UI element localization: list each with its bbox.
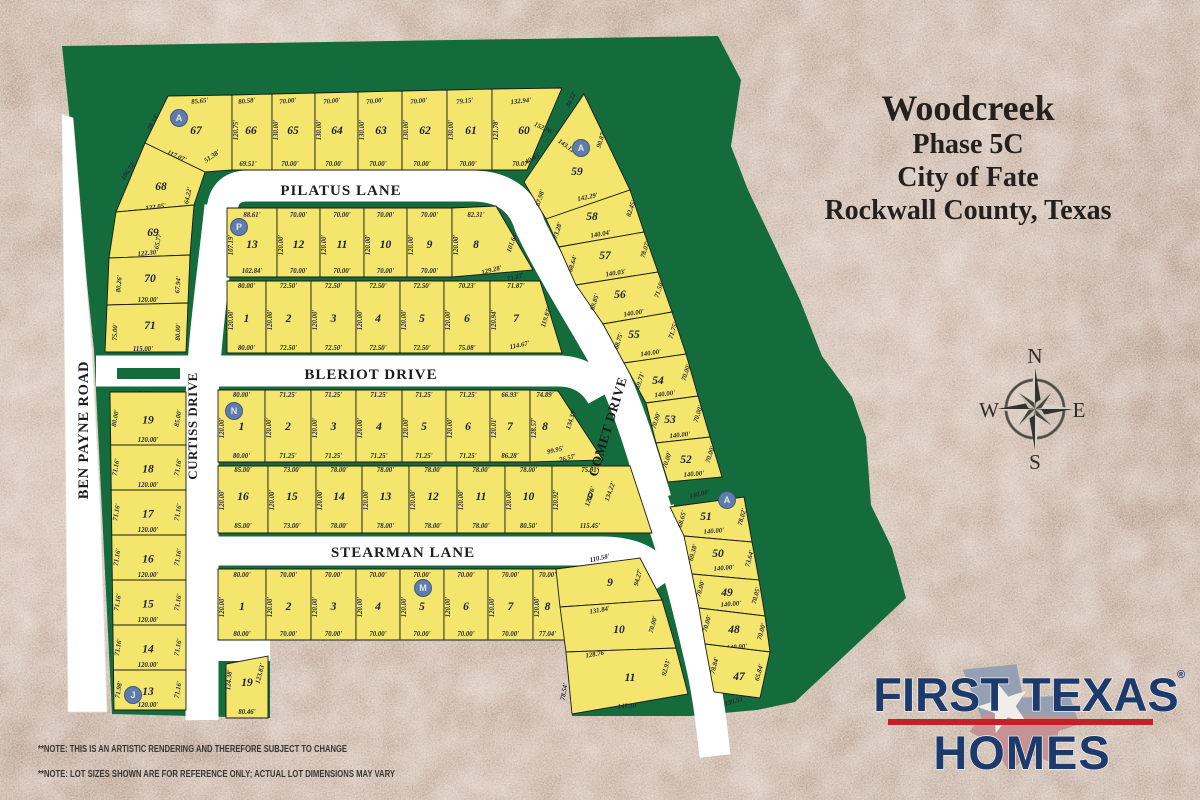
svg-text:130.00': 130.00' (359, 120, 366, 141)
svg-text:17: 17 (142, 509, 155, 521)
svg-text:HOMES: HOMES (933, 726, 1110, 779)
svg-text:120.00': 120.00' (489, 597, 496, 618)
svg-text:70.00': 70.00' (325, 631, 342, 638)
svg-text:4: 4 (374, 313, 381, 325)
svg-text:71.25': 71.25' (370, 392, 387, 399)
svg-text:75.00': 75.00' (112, 323, 120, 341)
svg-text:70.00': 70.00' (457, 572, 474, 579)
svg-text:70.00': 70.00' (502, 572, 519, 579)
svg-text:8: 8 (473, 239, 479, 251)
svg-text:120.00': 120.00' (401, 310, 408, 331)
svg-text:11: 11 (476, 491, 487, 503)
svg-text:70.00': 70.00' (459, 161, 476, 168)
svg-text:4: 4 (374, 601, 381, 613)
svg-text:120.00': 120.00' (445, 310, 452, 331)
svg-text:A: A (176, 113, 183, 123)
svg-text:120.00': 120.00' (138, 482, 159, 489)
svg-text:11: 11 (625, 672, 636, 684)
svg-text:71.25': 71.25' (279, 453, 296, 460)
svg-text:10: 10 (613, 624, 625, 636)
svg-text:P: P (236, 222, 242, 232)
svg-text:BLERIOT DRIVE: BLERIOT DRIVE (304, 367, 437, 383)
svg-text:72.50': 72.50' (413, 283, 430, 290)
svg-text:M: M (419, 583, 427, 593)
svg-text:Woodcreek: Woodcreek (881, 88, 1054, 128)
svg-text:120.00': 120.00' (138, 297, 159, 304)
svg-text:9: 9 (607, 577, 613, 589)
svg-text:120.94': 120.94' (491, 310, 498, 331)
svg-text:71.25': 71.25' (370, 453, 387, 460)
svg-text:15: 15 (286, 491, 298, 503)
svg-text:78.00': 78.00' (472, 467, 489, 474)
svg-text:6: 6 (465, 421, 471, 433)
svg-text:102.84': 102.84' (242, 268, 263, 275)
svg-text:70.00': 70.00' (413, 572, 430, 579)
svg-text:47: 47 (732, 671, 746, 683)
svg-text:**NOTE: THIS IS AN ARTISTIC RE: **NOTE: THIS IS AN ARTISTIC RENDERING AN… (38, 743, 347, 755)
svg-text:70.00': 70.00' (413, 161, 430, 168)
svg-text:1: 1 (239, 421, 245, 433)
svg-text:Rockwall County, Texas: Rockwall County, Texas (824, 195, 1111, 226)
svg-text:120.00': 120.00' (363, 490, 370, 511)
svg-text:120.00': 120.00' (267, 310, 274, 331)
svg-text:80.50': 80.50' (520, 523, 537, 530)
svg-text:85.00': 85.00' (234, 523, 251, 530)
svg-text:120.00': 120.00' (138, 437, 159, 444)
svg-text:120.00': 120.00' (357, 597, 364, 618)
svg-text:120.00': 120.00' (312, 597, 319, 618)
svg-text:CURTISS DRIVE: CURTISS DRIVE (185, 372, 200, 480)
svg-text:70.00': 70.00' (369, 631, 386, 638)
svg-text:78.00': 78.00' (520, 467, 537, 474)
svg-text:78.00': 78.00' (377, 523, 394, 530)
svg-text:120.00': 120.00' (312, 418, 319, 439)
svg-text:120.00': 120.00' (228, 310, 235, 331)
svg-text:71.25': 71.25' (415, 392, 432, 399)
svg-text:3: 3 (330, 601, 337, 613)
svg-text:70.00': 70.00' (333, 268, 350, 275)
svg-text:80.00': 80.00' (233, 392, 250, 399)
svg-text:City of Fate: City of Fate (897, 162, 1039, 193)
svg-text:A: A (578, 143, 585, 153)
svg-text:120.00': 120.00' (138, 662, 159, 669)
svg-text:73.00': 73.00' (283, 467, 300, 474)
svg-text:70.00': 70.00' (421, 268, 438, 275)
svg-text:52: 52 (680, 454, 692, 466)
svg-text:120.00': 120.00' (138, 617, 159, 624)
svg-text:120.00': 120.00' (267, 597, 274, 618)
svg-text:86.28': 86.28' (501, 453, 518, 460)
svg-text:A: A (724, 495, 731, 505)
svg-text:72.50': 72.50' (369, 283, 386, 290)
svg-text:12: 12 (427, 491, 439, 503)
svg-text:71.25': 71.25' (415, 453, 432, 460)
svg-text:70.00': 70.00' (502, 631, 519, 638)
svg-text:130.00': 130.00' (273, 120, 280, 141)
svg-text:68: 68 (155, 181, 167, 193)
svg-text:70.00': 70.00' (377, 212, 394, 219)
svg-text:75.08': 75.08' (458, 345, 475, 352)
svg-text:S: S (1029, 450, 1041, 474)
svg-text:120.00': 120.00' (408, 235, 415, 256)
svg-text:80.00': 80.00' (238, 345, 255, 352)
svg-text:71: 71 (144, 320, 156, 332)
svg-text:120.00': 120.00' (447, 418, 454, 439)
svg-text:4: 4 (375, 421, 382, 433)
svg-text:12: 12 (293, 239, 305, 251)
svg-text:72.50': 72.50' (280, 283, 297, 290)
svg-text:70: 70 (144, 273, 156, 285)
svg-text:W: W (979, 398, 999, 422)
svg-text:130.00': 130.00' (403, 120, 410, 141)
svg-text:120.00': 120.00' (453, 235, 460, 256)
svg-text:9: 9 (427, 239, 433, 251)
svg-text:72.50': 72.50' (280, 345, 297, 352)
svg-text:120.92': 120.92' (553, 490, 560, 511)
svg-text:N: N (231, 406, 238, 416)
svg-text:120.00': 120.00' (138, 572, 159, 579)
svg-text:70.00': 70.00' (413, 631, 430, 638)
svg-text:70.00': 70.00' (290, 268, 307, 275)
svg-text:70.00': 70.00' (377, 268, 394, 275)
svg-text:82.31': 82.31' (467, 212, 484, 219)
svg-text:51: 51 (700, 511, 712, 523)
svg-text:56: 56 (614, 289, 626, 301)
svg-text:54: 54 (652, 375, 664, 387)
svg-text:120.00': 120.00' (321, 235, 328, 256)
svg-text:71.25': 71.25' (279, 392, 296, 399)
svg-text:49: 49 (720, 587, 733, 599)
svg-text:2: 2 (285, 601, 292, 613)
svg-text:19: 19 (142, 415, 154, 427)
svg-text:120.00': 120.00' (410, 490, 417, 511)
svg-text:74.89': 74.89' (536, 392, 553, 399)
svg-text:70.00': 70.00' (421, 212, 438, 219)
svg-text:**NOTE: LOT SIZES SHOWN ARE FO: **NOTE: LOT SIZES SHOWN ARE FOR REFERENC… (38, 768, 395, 780)
svg-text:65: 65 (287, 125, 299, 137)
svg-text:19: 19 (241, 677, 253, 689)
svg-text:53: 53 (664, 414, 676, 426)
svg-text:115.00': 115.00' (133, 346, 153, 353)
svg-text:71.25': 71.25' (459, 392, 476, 399)
svg-text:71.25': 71.25' (325, 453, 342, 460)
svg-text:120.00': 120.00' (138, 702, 159, 709)
svg-text:5: 5 (421, 421, 427, 433)
svg-text:61: 61 (465, 125, 477, 137)
svg-text:1: 1 (239, 601, 245, 613)
svg-text:50: 50 (712, 548, 724, 560)
svg-text:Phase 5C: Phase 5C (912, 129, 1023, 160)
svg-text:3: 3 (330, 421, 337, 433)
svg-text:69.51': 69.51' (239, 161, 256, 168)
svg-text:10: 10 (523, 491, 535, 503)
svg-text:10: 10 (380, 239, 392, 251)
svg-text:70.00': 70.00' (457, 631, 474, 638)
svg-text:70.00': 70.00' (369, 161, 386, 168)
svg-text:16: 16 (142, 554, 154, 566)
svg-text:1: 1 (244, 313, 250, 325)
svg-text:70.00': 70.00' (290, 212, 307, 219)
svg-text:72.50': 72.50' (325, 283, 342, 290)
svg-text:72.50': 72.50' (369, 345, 386, 352)
svg-text:120.00': 120.00' (138, 527, 159, 534)
svg-text:8: 8 (545, 601, 551, 613)
svg-text:72.50': 72.50' (325, 345, 342, 352)
svg-text:107.19': 107.19' (228, 235, 235, 256)
svg-text:13: 13 (246, 239, 258, 251)
svg-text:14: 14 (333, 491, 345, 503)
svg-text:2: 2 (284, 421, 291, 433)
svg-text:5: 5 (419, 313, 425, 325)
svg-text:BEN PAYNE ROAD: BEN PAYNE ROAD (76, 361, 92, 500)
svg-text:120.00': 120.00' (365, 235, 372, 256)
svg-text:120.00': 120.00' (403, 418, 410, 439)
svg-text:88.61': 88.61' (243, 212, 260, 219)
svg-text:72.50': 72.50' (413, 345, 430, 352)
svg-text:60: 60 (518, 125, 530, 137)
svg-text:70.00': 70.00' (280, 572, 297, 579)
svg-text:5: 5 (419, 601, 425, 613)
svg-text:120.00': 120.00' (357, 310, 364, 331)
svg-text:120.00': 120.00' (269, 490, 276, 511)
svg-text:120.00': 120.00' (312, 310, 319, 331)
svg-text:13: 13 (380, 491, 392, 503)
svg-text:14: 14 (142, 644, 154, 656)
svg-text:78.00': 78.00' (424, 467, 441, 474)
svg-text:58: 58 (586, 211, 598, 223)
svg-text:120.00': 120.00' (317, 490, 324, 511)
svg-text:70.00': 70.00' (281, 161, 298, 168)
svg-text:121.78': 121.78' (493, 120, 500, 141)
svg-text:120.00': 120.00' (445, 597, 452, 618)
svg-text:66.93': 66.93' (501, 392, 518, 399)
svg-text:13: 13 (142, 686, 154, 698)
svg-text:70.00': 70.00' (325, 161, 342, 168)
svg-text:130.00': 130.00' (448, 120, 455, 141)
svg-text:71.25': 71.25' (459, 453, 476, 460)
svg-text:120.00': 120.00' (506, 490, 513, 511)
svg-text:120.01': 120.01' (491, 418, 498, 439)
svg-text:71.25': 71.25' (325, 392, 342, 399)
svg-text:77.04': 77.04' (539, 631, 556, 638)
svg-text:78.00': 78.00' (472, 523, 489, 530)
svg-text:115.45': 115.45' (580, 523, 600, 530)
svg-text:3: 3 (330, 313, 337, 325)
svg-text:64: 64 (331, 125, 343, 137)
svg-text:70.00': 70.00' (333, 212, 350, 219)
svg-text:FIRST TEXAS: FIRST TEXAS (873, 668, 1179, 721)
svg-text:120.00': 120.00' (219, 490, 226, 511)
svg-text:128.57': 128.57' (531, 418, 538, 439)
svg-text:70.00': 70.00' (369, 572, 386, 579)
svg-text:70.23': 70.23' (458, 283, 475, 290)
svg-text:48: 48 (727, 624, 740, 636)
svg-text:85.00': 85.00' (234, 467, 251, 474)
svg-text:J: J (130, 690, 135, 700)
svg-text:70.00': 70.00' (539, 572, 556, 579)
svg-text:71.87': 71.87' (507, 283, 524, 290)
svg-text:130.00': 130.00' (316, 120, 323, 141)
svg-text:8: 8 (542, 421, 548, 433)
svg-text:70.00': 70.00' (280, 631, 297, 638)
svg-text:78.00': 78.00' (377, 467, 394, 474)
svg-text:STEARMAN LANE: STEARMAN LANE (331, 545, 475, 561)
svg-text:55: 55 (628, 329, 640, 341)
svg-text:67: 67 (190, 125, 203, 137)
svg-text:N: N (1027, 344, 1042, 368)
svg-text:80.00': 80.00' (233, 453, 250, 460)
svg-text:120.00': 120.00' (458, 490, 465, 511)
svg-text:E: E (1073, 398, 1086, 422)
svg-text:63: 63 (375, 125, 387, 137)
svg-text:80.00': 80.00' (238, 283, 255, 290)
svg-text:120.00': 120.00' (266, 418, 273, 439)
svg-text:66: 66 (245, 125, 257, 137)
svg-text:120.00': 120.00' (401, 597, 408, 618)
svg-text:70.00': 70.00' (325, 572, 342, 579)
svg-text:80.00': 80.00' (233, 631, 250, 638)
svg-text:59: 59 (571, 166, 583, 178)
svg-text:80.00': 80.00' (233, 572, 250, 579)
svg-text:®: ® (1177, 669, 1185, 681)
svg-text:78.00': 78.00' (330, 523, 347, 530)
svg-text:73.00': 73.00' (283, 523, 300, 530)
svg-text:120.00': 120.00' (357, 418, 364, 439)
svg-text:120.00': 120.00' (219, 597, 226, 618)
svg-text:18: 18 (142, 464, 154, 476)
svg-text:78.00': 78.00' (330, 467, 347, 474)
svg-text:120.75': 120.75' (233, 120, 240, 141)
svg-text:120.00': 120.00' (534, 597, 541, 618)
svg-text:2: 2 (285, 313, 292, 325)
svg-text:120.00': 120.00' (219, 418, 226, 439)
svg-text:147.10': 147.10' (617, 702, 638, 710)
svg-text:11: 11 (337, 239, 348, 251)
svg-text:80.46': 80.46' (238, 709, 255, 716)
svg-text:57: 57 (599, 250, 612, 262)
svg-text:16: 16 (237, 491, 249, 503)
svg-text:6: 6 (463, 601, 469, 613)
svg-text:120.00': 120.00' (278, 235, 285, 256)
svg-text:78.00': 78.00' (424, 523, 441, 530)
svg-text:6: 6 (464, 313, 470, 325)
svg-text:80.00': 80.00' (175, 323, 183, 341)
svg-text:62: 62 (419, 125, 431, 137)
svg-text:15: 15 (142, 599, 154, 611)
svg-text:PILATUS LANE: PILATUS LANE (280, 183, 401, 199)
